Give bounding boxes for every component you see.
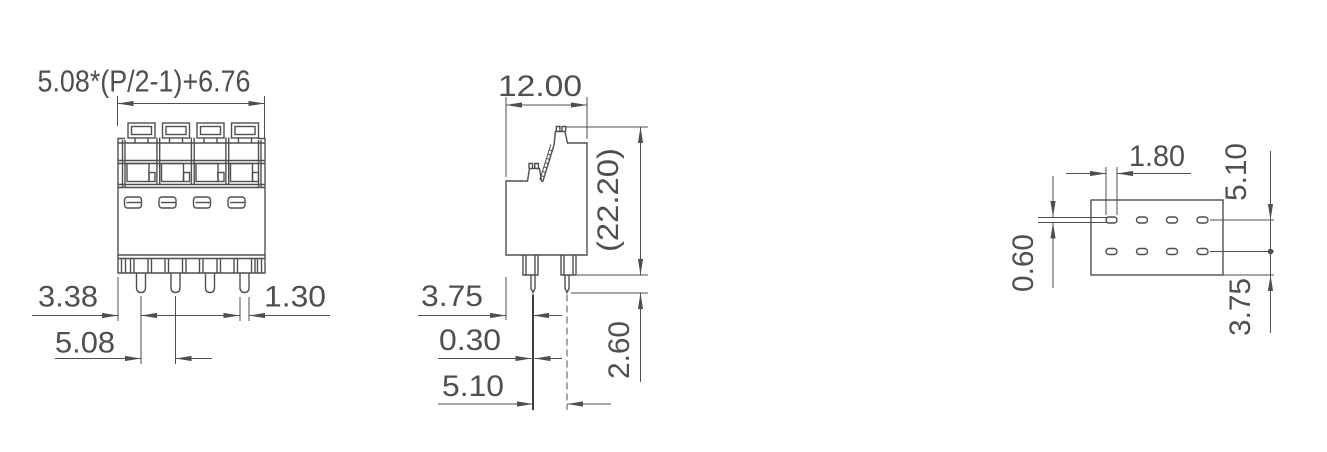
front-dimensions: 5.08*(P/2-1)+6.76 3.38 1.30 5.08 bbox=[32, 64, 330, 365]
footprint-slot-r1c2 bbox=[1137, 217, 1148, 223]
dim-label-side-pin-thickness: 0.30 bbox=[439, 324, 501, 357]
dim-label-front-pin-pitch: 5.08 bbox=[55, 327, 115, 360]
footprint-view: 1.80 0.60 5.10 3.75 bbox=[1007, 140, 1274, 336]
front-extension-lines bbox=[118, 96, 265, 364]
dim-label-side-pin-protrusion: 2.60 bbox=[603, 321, 636, 379]
footprint-datum-dot bbox=[1268, 249, 1274, 255]
footprint-slot-r1c4 bbox=[1197, 217, 1208, 223]
front-pole-4 bbox=[228, 123, 259, 293]
side-body bbox=[506, 127, 587, 293]
front-pole-1 bbox=[125, 123, 156, 293]
footprint-leader-lines bbox=[1038, 218, 1274, 276]
dim-label-front-pin-width: 1.30 bbox=[264, 281, 326, 314]
front-pole-3 bbox=[194, 123, 225, 293]
drawing-canvas: 5.08*(P/2-1)+6.76 3.38 1.30 5.08 bbox=[0, 0, 1327, 452]
footprint-slot-r2c3 bbox=[1167, 249, 1178, 255]
side-pins bbox=[531, 275, 569, 293]
side-outline bbox=[506, 132, 587, 256]
side-extension-lines bbox=[506, 97, 587, 320]
side-pin-shoulders bbox=[523, 255, 576, 275]
dim-label-pitch-formula: 5.08*(P/2-1)+6.76 bbox=[38, 64, 251, 99]
side-button-prongs bbox=[529, 127, 566, 169]
footprint-outline bbox=[1091, 200, 1223, 275]
dim-label-footprint-slot-width: 1.80 bbox=[1129, 140, 1185, 173]
footprint-extension-lines bbox=[1106, 167, 1117, 215]
footprint-body bbox=[1091, 200, 1223, 275]
front-base-end-details bbox=[122, 259, 262, 274]
footprint-slot-r1c3 bbox=[1167, 217, 1178, 223]
dim-label-footprint-row-pitch: 5.10 bbox=[1220, 143, 1253, 201]
front-pole-2 bbox=[159, 123, 190, 293]
side-slope-ribs bbox=[540, 144, 552, 180]
front-view: 5.08*(P/2-1)+6.76 3.38 1.30 5.08 bbox=[32, 64, 330, 365]
dim-label-side-left-offset: 3.75 bbox=[421, 280, 483, 313]
footprint-slot-r1c1 bbox=[1106, 217, 1117, 223]
footprint-slot-r2c4 bbox=[1197, 249, 1208, 255]
footprint-dimensions: 1.80 0.60 5.10 3.75 bbox=[1007, 140, 1274, 336]
side-dimensions: 12.00 (22.20) 2.60 3.75 0.30 5.10 bbox=[418, 70, 648, 410]
dim-label-side-height: (22.20) bbox=[592, 148, 625, 252]
footprint-slot-r2c1 bbox=[1106, 249, 1117, 255]
dim-label-side-width: 12.00 bbox=[498, 70, 582, 103]
terminal-block-drawing: 5.08*(P/2-1)+6.76 3.38 1.30 5.08 bbox=[0, 0, 1327, 452]
dim-label-side-pin-spacing: 5.10 bbox=[442, 370, 504, 403]
front-body bbox=[118, 123, 265, 293]
dim-label-footprint-slot-height: 0.60 bbox=[1007, 234, 1040, 292]
footprint-slot-r2c2 bbox=[1137, 249, 1148, 255]
dim-label-footprint-edge-offset: 3.75 bbox=[1224, 278, 1257, 336]
side-view: 12.00 (22.20) 2.60 3.75 0.30 5.10 bbox=[418, 70, 648, 410]
dim-label-front-left-offset: 3.38 bbox=[38, 281, 98, 314]
